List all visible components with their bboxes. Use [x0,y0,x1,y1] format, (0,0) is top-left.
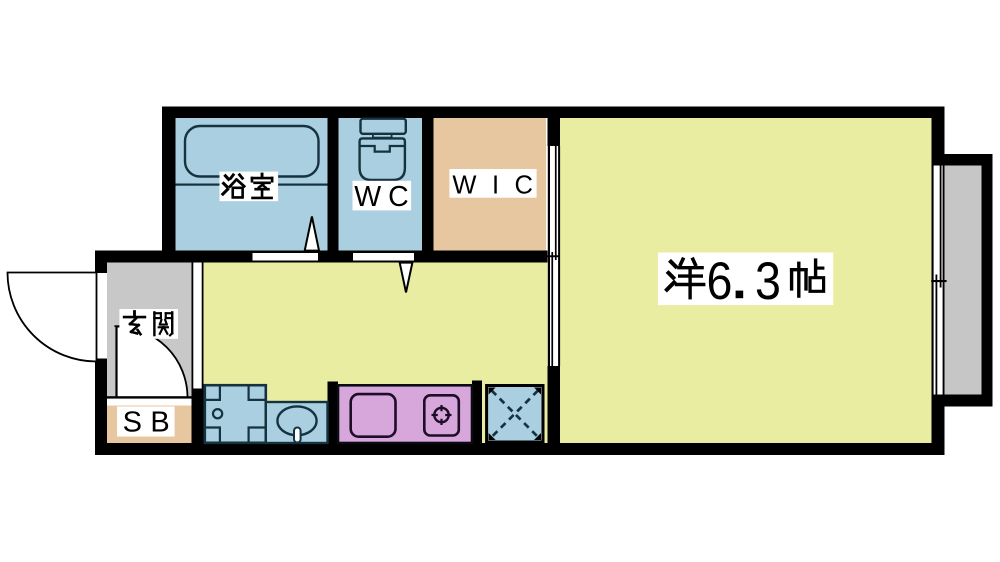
svg-text:3: 3 [755,251,781,310]
svg-text:WC: WC [354,181,415,213]
svg-text:6: 6 [707,251,733,310]
svg-text:WIC: WIC [452,172,548,200]
svg-text:SB: SB [123,407,179,439]
